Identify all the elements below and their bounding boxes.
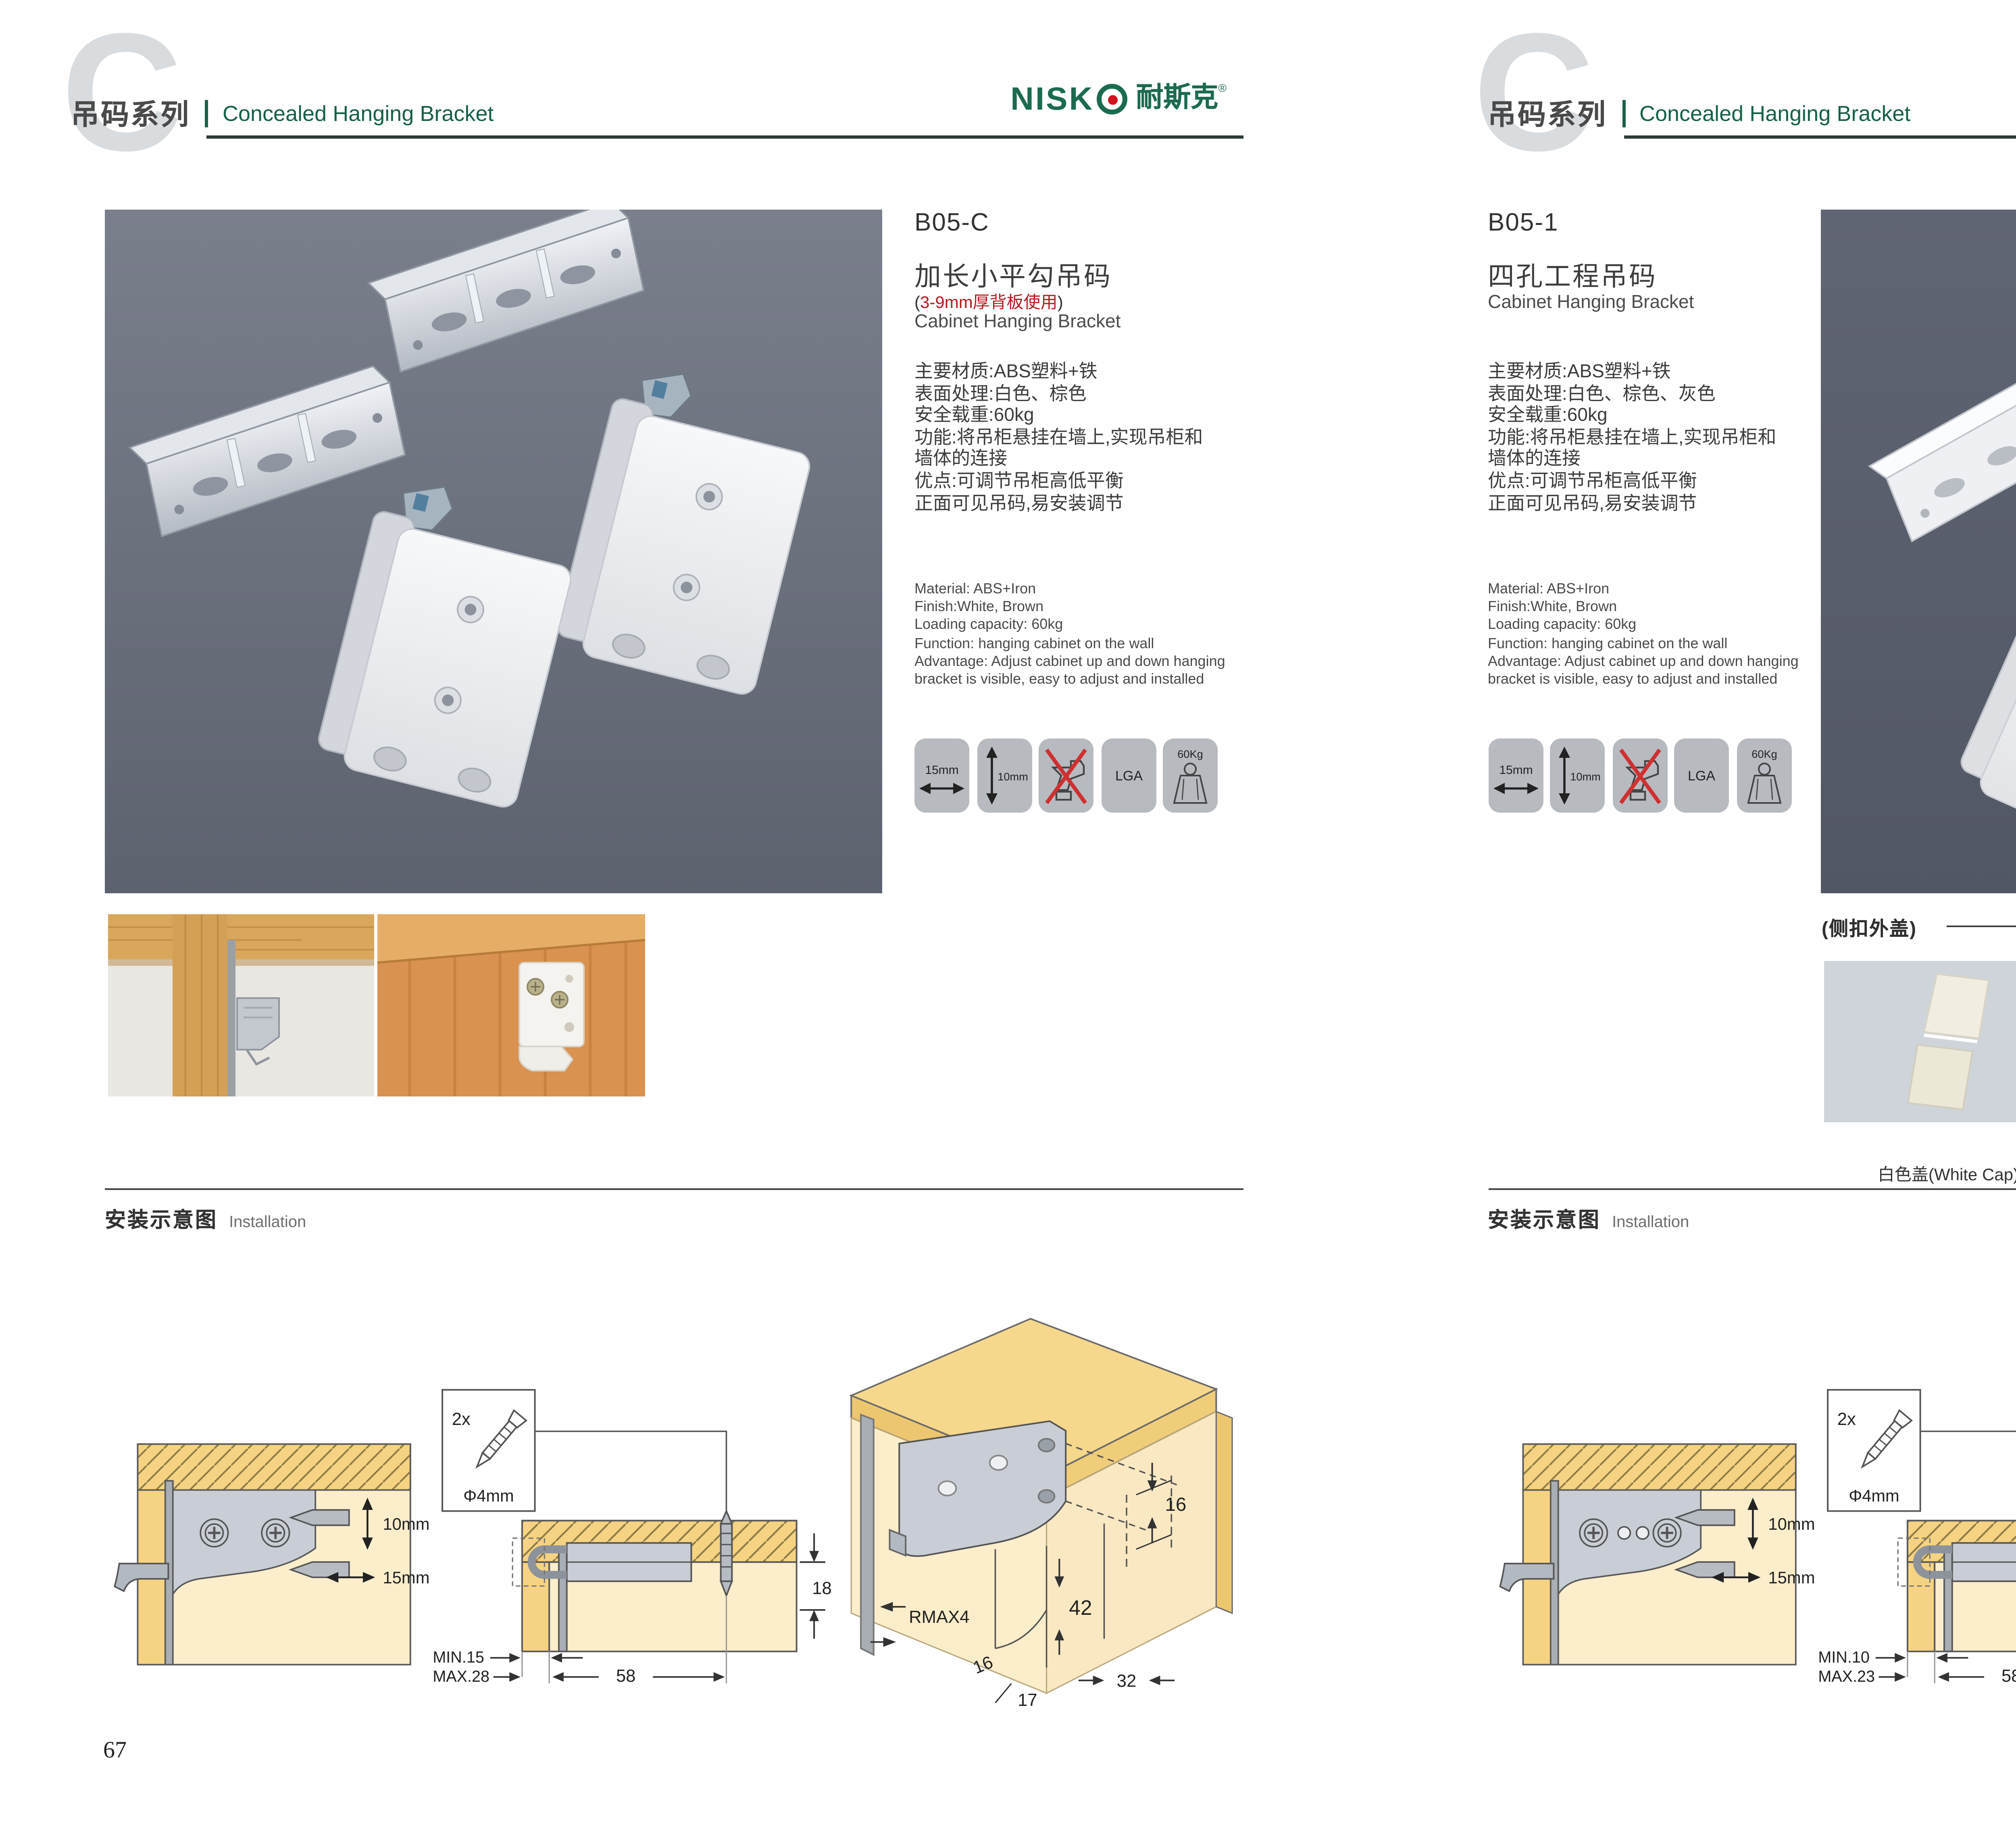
series-title-cn: 吊码系列	[71, 93, 190, 133]
install-photo-cabinet-bracket	[377, 914, 644, 1096]
product-photo-b051	[1820, 210, 2016, 893]
svg-text:MAX.23: MAX.23	[1817, 1668, 1874, 1683]
catalog-spread: C 吊码系列 Concealed Hanging Bracket NISK耐斯克…	[0, 0, 2016, 1847]
svg-text:58: 58	[616, 1666, 635, 1683]
header-divider	[205, 99, 208, 127]
logo-text-cn: 耐斯克	[1136, 84, 1218, 114]
svg-text:LGA: LGA	[1688, 768, 1715, 784]
caps-section-title: (侧扣外盖)	[1822, 914, 1917, 942]
load-60kg-icon: 60Kg	[1163, 738, 1218, 813]
svg-text:Φ4mm: Φ4mm	[1848, 1486, 1898, 1505]
width-15mm-icon: 15mm	[1488, 738, 1543, 813]
no-drill-icon	[1039, 738, 1093, 813]
svg-text:10mm: 10mm	[1767, 1514, 1814, 1533]
installation-title: 安装示意图 Installation	[1488, 1203, 1689, 1233]
nisko-logo: NISK耐斯克®	[1010, 84, 1227, 116]
header-divider	[1622, 99, 1625, 127]
cap-label: 白色盖(White Cap)	[1823, 1163, 2016, 1187]
product-code: B05-C	[914, 210, 989, 239]
lga-cert-icon: LGA	[1101, 738, 1156, 813]
series-title-en: Concealed Hanging Bracket	[1639, 101, 1910, 125]
svg-text:Φ4mm: Φ4mm	[463, 1486, 514, 1505]
svg-text:LGA: LGA	[1114, 768, 1142, 784]
load-60kg-icon: 60Kg	[1736, 738, 1791, 813]
width-15mm-icon: 15mm	[914, 738, 969, 813]
header-rule	[1623, 135, 2016, 139]
registered-mark: ®	[1218, 84, 1227, 95]
svg-text:2x: 2x	[452, 1410, 471, 1429]
svg-text:RMAX4: RMAX4	[909, 1607, 969, 1627]
specs-cn: 主要材质:ABS塑料+铁表面处理:白色、棕色、灰色 安全载重:60kg功能:将吊…	[1488, 363, 1776, 516]
header-rule	[206, 135, 1243, 139]
svg-text:16: 16	[1165, 1494, 1186, 1515]
series-title-en: Concealed Hanging Bracket	[223, 101, 494, 125]
svg-text:MIN.10: MIN.10	[1817, 1649, 1869, 1666]
product-code: B05-1	[1488, 210, 1559, 239]
page-header: 吊码系列 Concealed Hanging Bracket	[71, 94, 494, 132]
svg-text:2x: 2x	[1837, 1410, 1855, 1429]
product-photo-b05c	[105, 210, 882, 893]
height-10mm-icon: 10mm	[1550, 738, 1605, 813]
installation-rule	[105, 1188, 1243, 1191]
svg-text:MAX.28: MAX.28	[433, 1668, 489, 1683]
svg-text:15mm: 15mm	[925, 763, 958, 777]
svg-text:MIN.15: MIN.15	[433, 1649, 484, 1666]
page-header: 吊码系列 Concealed Hanging Bracket	[1488, 94, 1910, 132]
install-photo-wall-hook	[108, 914, 374, 1096]
svg-text:10mm: 10mm	[383, 1514, 429, 1533]
specs-en: Material: ABS+IronFinish:White, Brown Lo…	[1488, 580, 1799, 689]
svg-text:15mm: 15mm	[1767, 1568, 1814, 1587]
cap-photo-white	[1823, 961, 2016, 1122]
lga-cert-icon: LGA	[1674, 738, 1729, 813]
svg-text:10mm: 10mm	[997, 770, 1027, 783]
svg-text:15mm: 15mm	[383, 1568, 429, 1587]
product-name-en: Cabinet Hanging Bracket	[1488, 293, 1694, 313]
diagram-dimension-section: 2x Φ4mm	[1817, 1383, 2016, 1683]
specs-cn: 主要材质:ABS塑料+铁表面处理:白色、棕色 安全载重:60kg功能:将吊柜悬挂…	[914, 363, 1203, 516]
diagram-side-section: 10mm 15mm	[113, 1432, 429, 1677]
svg-text:10mm: 10mm	[1570, 770, 1601, 783]
page-number: 67	[103, 1738, 127, 1766]
installation-title: 安装示意图 Installation	[105, 1203, 306, 1233]
product-name-cn: 四孔工程吊码	[1488, 255, 1657, 293]
feature-icons: 15mm 10mm LGA	[914, 738, 1218, 813]
no-drill-icon	[1612, 738, 1667, 813]
logo-text-en: NISK	[1010, 84, 1094, 116]
svg-text:15mm: 15mm	[1498, 763, 1532, 777]
product-info-b051: B05-1 四孔工程吊码 Cabinet Hanging Bracket 主要材…	[1488, 210, 1830, 903]
product-note: (3-9mm厚背板使用)	[914, 290, 1063, 314]
caps-rule	[1946, 926, 2016, 928]
feature-icons: 15mm 10mm LGA	[1488, 738, 1791, 813]
diagram-side-section: 10mm 15mm	[1497, 1432, 1814, 1677]
product-name-en: Cabinet Hanging Bracket	[914, 313, 1120, 332]
height-10mm-icon: 10mm	[977, 738, 1031, 813]
svg-text:42: 42	[1069, 1596, 1092, 1619]
catalog-page-left: C 吊码系列 Concealed Hanging Bracket NISK耐斯克…	[0, 0, 1352, 1847]
product-info-b05c: B05-C 加长小平勾吊码 (3-9mm厚背板使用) Cabinet Hangi…	[914, 210, 1256, 903]
svg-text:60Kg: 60Kg	[1177, 748, 1203, 760]
diagram-dimension-section: 2x Φ4mm	[432, 1383, 832, 1683]
svg-text:60Kg: 60Kg	[1751, 748, 1776, 760]
svg-text:32: 32	[1117, 1671, 1137, 1691]
specs-en: Material: ABS+IronFinish:White, Brown Lo…	[914, 580, 1225, 689]
product-name-cn: 加长小平勾吊码	[914, 255, 1112, 293]
installation-rule	[1488, 1188, 2016, 1191]
diagram-isometric: 16 42 RMAX4 16 17 32	[806, 1290, 1239, 1719]
svg-text:17: 17	[1018, 1690, 1037, 1710]
series-title-cn: 吊码系列	[1488, 93, 1607, 133]
svg-text:58: 58	[2001, 1666, 2016, 1683]
logo-red-dot-icon	[1108, 94, 1117, 104]
catalog-page-right: C 吊码系列 Concealed Hanging Bracket NISK耐斯克…	[1352, 0, 2016, 1847]
logo-o-icon	[1097, 84, 1128, 114]
